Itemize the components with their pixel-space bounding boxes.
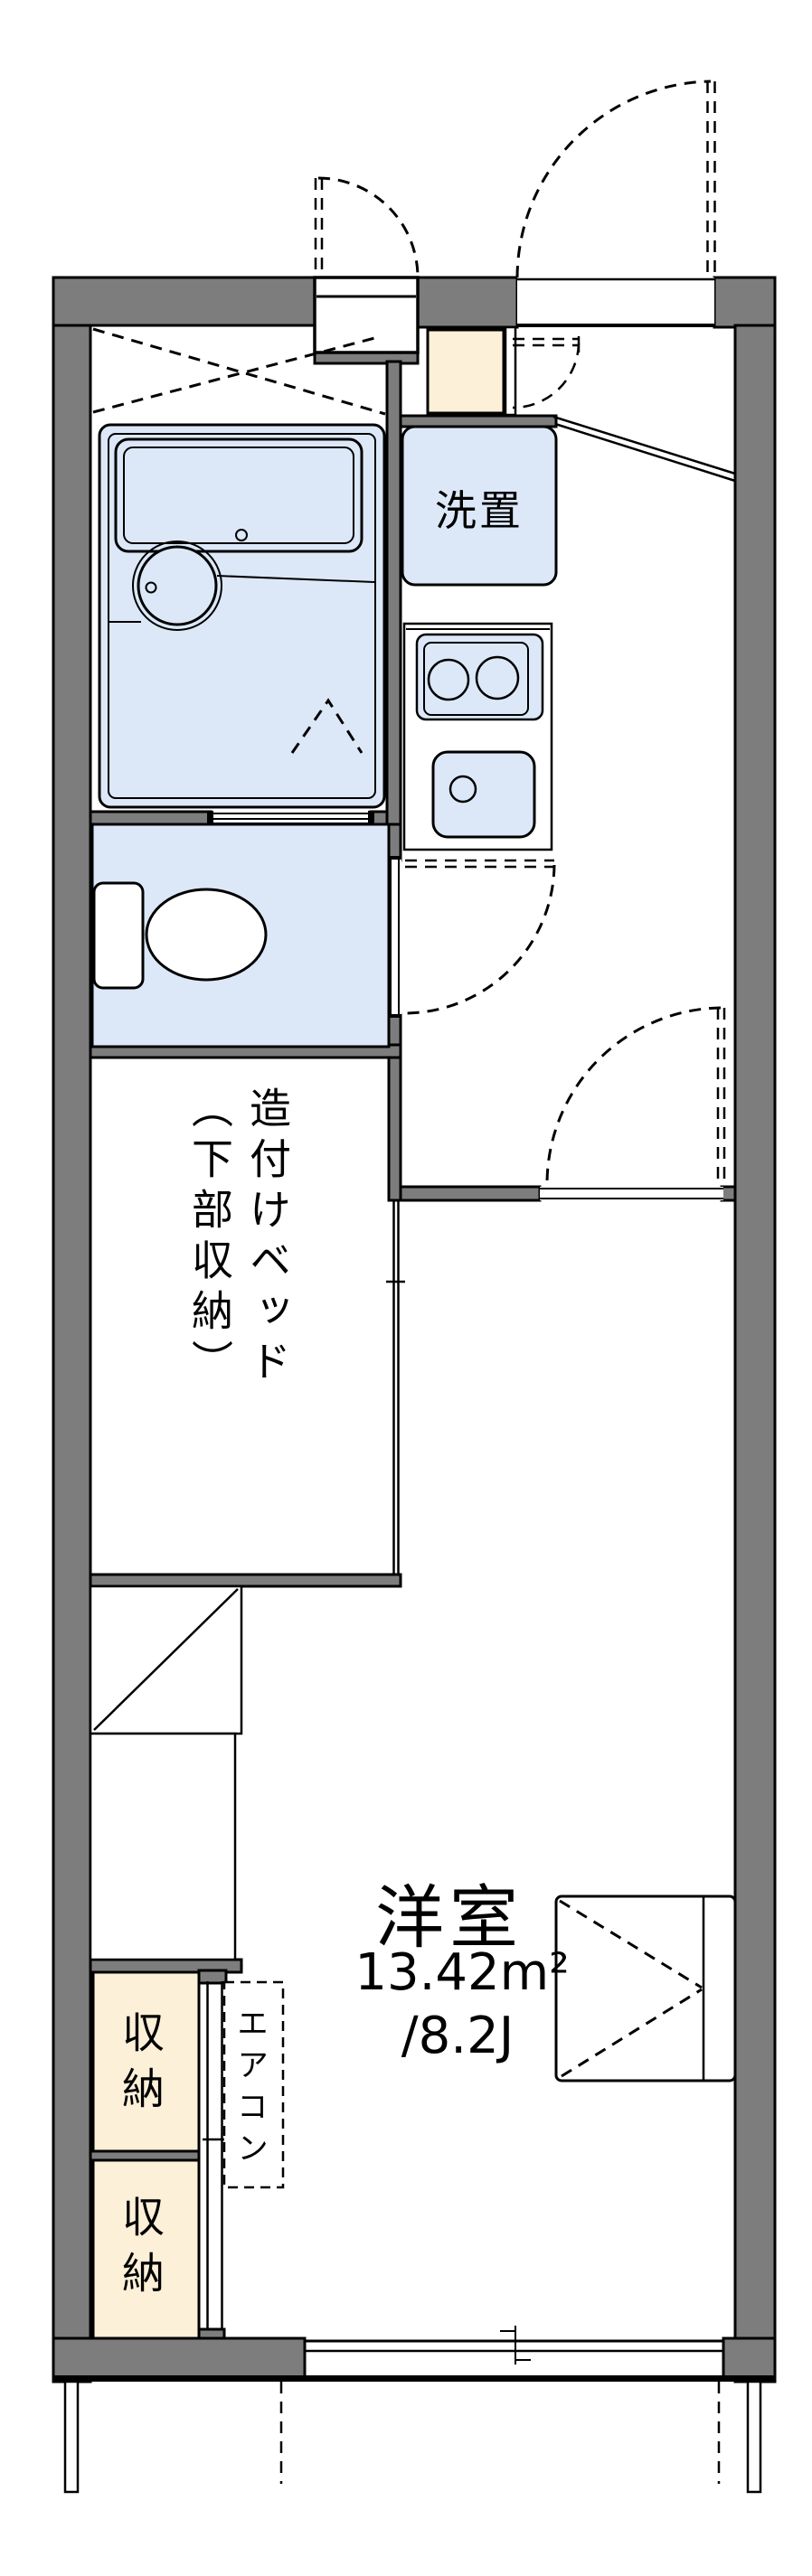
room-area-sqm: 13.42m² <box>354 1943 571 2002</box>
room-area-jo: /8.2J <box>349 2007 566 2065</box>
kitchen-unit <box>404 624 552 850</box>
entrance-door-swing <box>517 81 715 277</box>
bed-partition <box>386 1200 405 1575</box>
storage-lower-label: 収納 <box>123 2195 170 2348</box>
entrance-doorway <box>517 277 714 327</box>
stove <box>417 635 543 719</box>
room-door-swing <box>547 1008 724 1184</box>
toilet-tank <box>94 883 143 988</box>
room-doorway <box>540 1187 723 1200</box>
built-in-bed-label: 造付けベッド （下部収納） <box>177 1086 297 1520</box>
washer-alcove-door-swing <box>513 336 579 408</box>
kitchen-sink <box>433 752 534 837</box>
outside-storage-door-swing <box>316 178 418 277</box>
toilet-bowl <box>146 889 266 980</box>
entrance-step-line <box>553 417 735 481</box>
bath-unit <box>99 425 384 807</box>
floorplan-drawing <box>0 0 812 2576</box>
floorplan: 洗置 造付けベッド （下部収納） 洋室 13.42m² /8.2J 収納 収納 … <box>0 0 812 2576</box>
balcony-posts <box>65 2382 760 2492</box>
shoe-cabinet <box>428 330 504 413</box>
aircon-label: エアコン <box>237 2007 273 2187</box>
door-jamb <box>505 327 515 415</box>
toilet-room <box>92 824 389 1047</box>
balcony-window <box>305 2326 723 2364</box>
storage-upper-label: 収納 <box>123 2010 170 2164</box>
toilet-door-swing <box>404 860 554 1013</box>
closet-under-bed <box>90 1586 241 1960</box>
washer-space-label: 洗置 <box>402 478 556 538</box>
window-counter <box>556 1896 735 2081</box>
